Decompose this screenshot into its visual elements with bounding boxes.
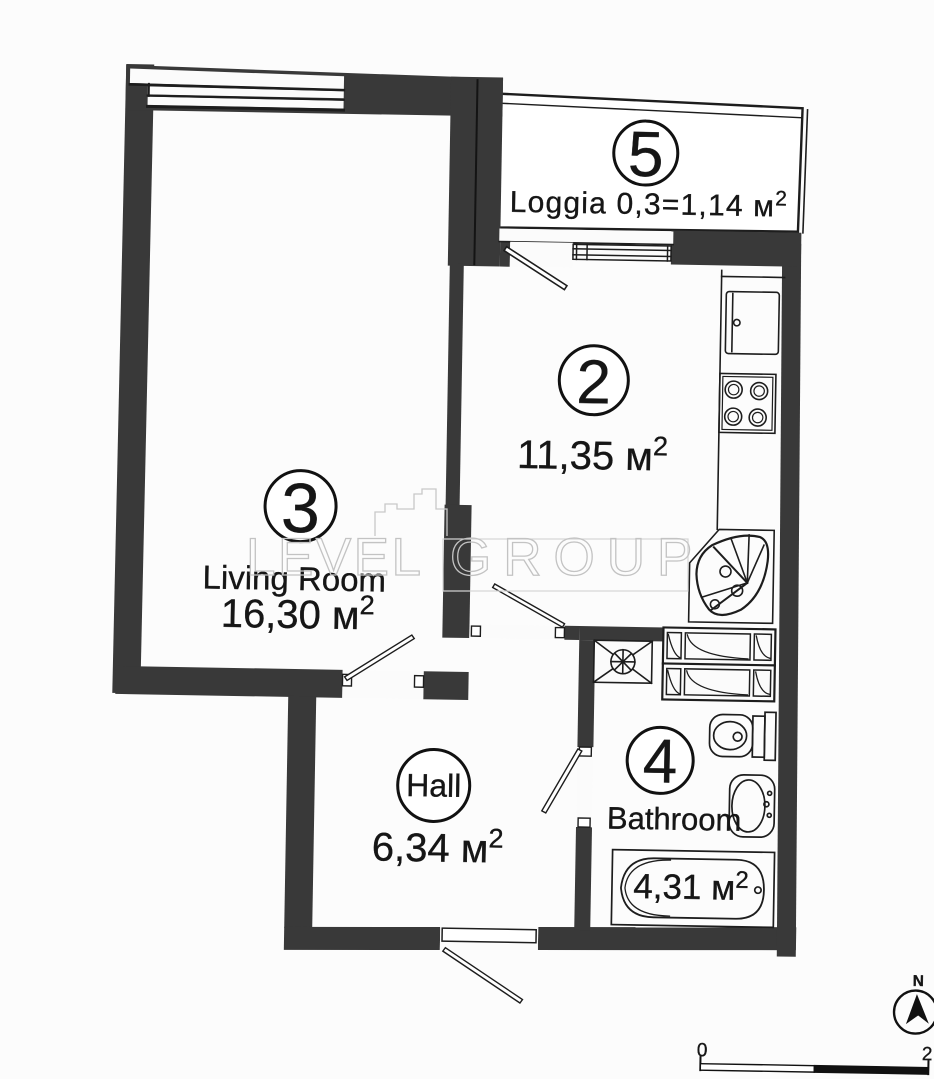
svg-text:5: 5: [627, 118, 664, 191]
svg-text:16,30 м2: 16,30 м2: [220, 588, 375, 639]
svg-text:Hall: Hall: [406, 767, 462, 804]
svg-text:N: N: [913, 973, 924, 990]
svg-text:GROUP: GROUP: [450, 528, 704, 587]
svg-text:11,35 м2: 11,35 м2: [517, 429, 669, 480]
svg-text:4,31 м2: 4,31 м2: [633, 865, 749, 908]
svg-text:4: 4: [642, 727, 678, 797]
svg-text:6,34 м2: 6,34 м2: [371, 821, 503, 871]
svg-text:2: 2: [576, 348, 612, 418]
svg-text:LEVEL: LEVEL: [246, 528, 424, 587]
svg-text:0: 0: [697, 1040, 708, 1061]
svg-text:Bathroom: Bathroom: [607, 800, 742, 837]
svg-text:2: 2: [922, 1044, 933, 1065]
